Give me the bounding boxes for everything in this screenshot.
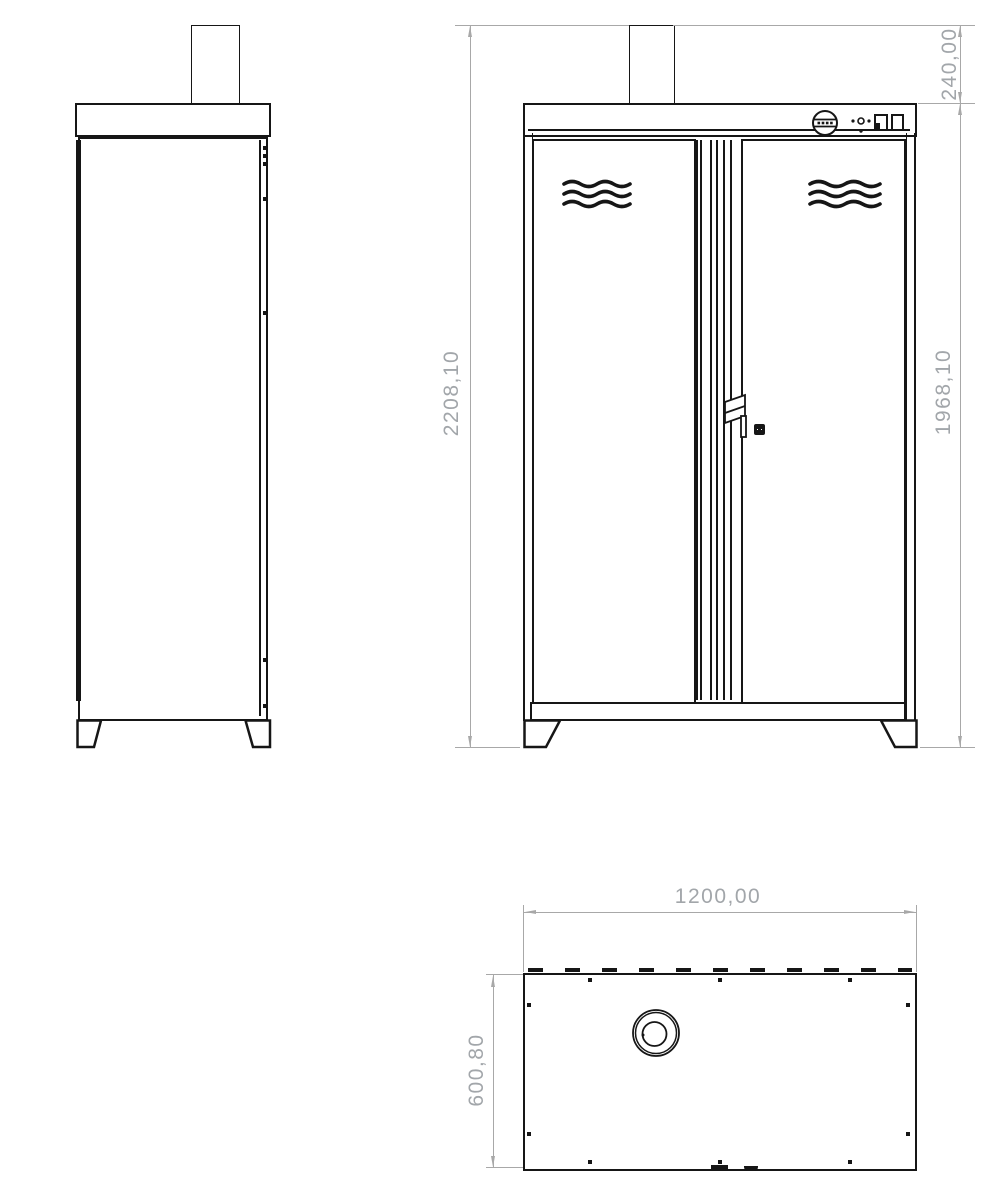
top-bottom-tab (711, 1165, 728, 1170)
top-screw-dot (527, 1003, 531, 1007)
top-screw-dot (588, 978, 592, 982)
dim-arrow (958, 104, 962, 115)
dim-label-overall-height: 2208,10 (440, 350, 464, 436)
side-hinge-dot (263, 154, 267, 158)
side-hinge-dot (263, 146, 267, 150)
top-screw-dot (848, 978, 852, 982)
dim-arrow (904, 910, 915, 914)
side-hinge-dot (263, 704, 267, 708)
dim-arrow (468, 26, 472, 37)
extension-line (673, 25, 975, 26)
switch-left-icon[interactable] (874, 114, 888, 131)
dim-label-overall-depth: 600,80 (465, 1033, 489, 1106)
front-bottom-strip (530, 702, 906, 721)
power-indicator-icon (850, 113, 872, 135)
door-handle-icon[interactable] (722, 390, 752, 442)
dim-line-overall-width (523, 912, 917, 913)
side-hinge-dot (263, 162, 267, 166)
side-hinge-dot (263, 197, 267, 201)
switch-right-icon[interactable] (891, 114, 904, 131)
door-gap-line (700, 140, 702, 700)
control-knob-icon[interactable] (811, 109, 839, 137)
extension-line (918, 103, 975, 104)
dim-label-flue-height: 240,00 (938, 27, 962, 100)
side-hinge-dot (263, 658, 267, 662)
top-view-body (523, 973, 917, 1171)
dim-ext-depth-top (486, 974, 523, 975)
dim-arrow (491, 976, 495, 987)
center-strip-line (710, 140, 712, 700)
top-screw-dot (906, 1132, 910, 1136)
side-foot-right (244, 719, 272, 749)
top-screw-dot (906, 1003, 910, 1007)
front-flue (629, 25, 675, 105)
front-right-wall (906, 133, 916, 721)
dim-arrow (958, 736, 962, 747)
vent-right-icon (807, 178, 885, 210)
technical-drawing-canvas: 2208,10 240,00 1968,10 1200,00 600,80 (0, 0, 982, 1200)
top-view-hidden-dashes (528, 968, 912, 972)
extension-line (455, 25, 629, 26)
dim-label-overall-width: 1200,00 (675, 885, 761, 909)
center-strip-line (716, 140, 718, 700)
top-screw-dot (848, 1160, 852, 1164)
top-screw-dot (588, 1160, 592, 1164)
top-screw-dot (527, 1132, 531, 1136)
side-body-inner-right-line (259, 140, 261, 716)
side-top-cap (75, 103, 271, 137)
dim-arrow (525, 910, 536, 914)
right-door[interactable] (741, 139, 906, 705)
top-screw-dot (718, 1160, 722, 1164)
dim-ext-width-right (916, 905, 917, 972)
dim-arrow (468, 736, 472, 747)
side-foot-left (76, 719, 103, 749)
dim-line-body-height (960, 103, 961, 747)
left-door[interactable] (532, 139, 696, 705)
dim-line-overall-height (470, 25, 471, 747)
side-door-edge-strip (76, 140, 81, 701)
dim-line-overall-depth (493, 975, 494, 1167)
top-bottom-tab (744, 1166, 758, 1171)
dim-label-body-height: 1968,10 (932, 349, 956, 435)
dim-ext-width-left (523, 905, 524, 972)
extension-line (455, 747, 520, 748)
side-flue (191, 25, 240, 105)
side-body (78, 137, 268, 721)
dim-ext-depth-bottom (486, 1167, 523, 1168)
vent-left-icon (561, 178, 635, 210)
side-hinge-dot (263, 311, 267, 315)
extension-line (920, 747, 975, 748)
dim-arrow (491, 1156, 495, 1167)
flue-opening-icon (630, 1007, 682, 1059)
top-screw-dot (718, 978, 722, 982)
front-foot-left (523, 719, 563, 749)
door-lock-icon[interactable] (754, 424, 765, 435)
door-gap-line (696, 140, 698, 700)
front-foot-right (878, 719, 918, 749)
